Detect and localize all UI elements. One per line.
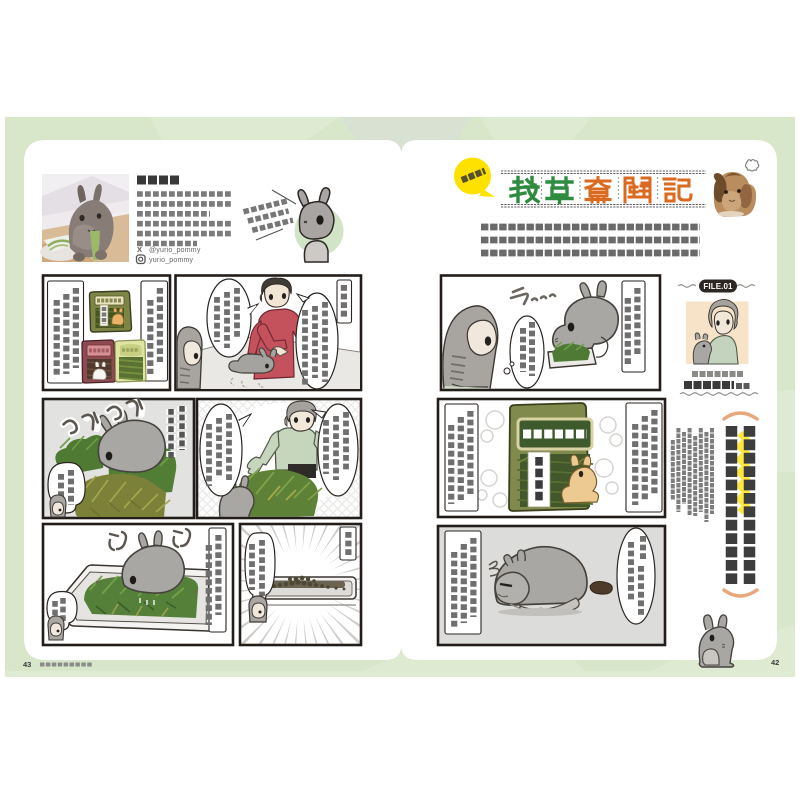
- svg-text:yurio_pommy: yurio_pommy: [149, 257, 194, 264]
- svg-text:42: 42: [771, 658, 779, 667]
- svg-text:FILE.01: FILE.01: [703, 282, 733, 291]
- svg-text:@yurio_pommy: @yurio_pommy: [149, 247, 201, 254]
- svg-text:43: 43: [23, 660, 31, 669]
- svg-text:X: X: [137, 245, 142, 254]
